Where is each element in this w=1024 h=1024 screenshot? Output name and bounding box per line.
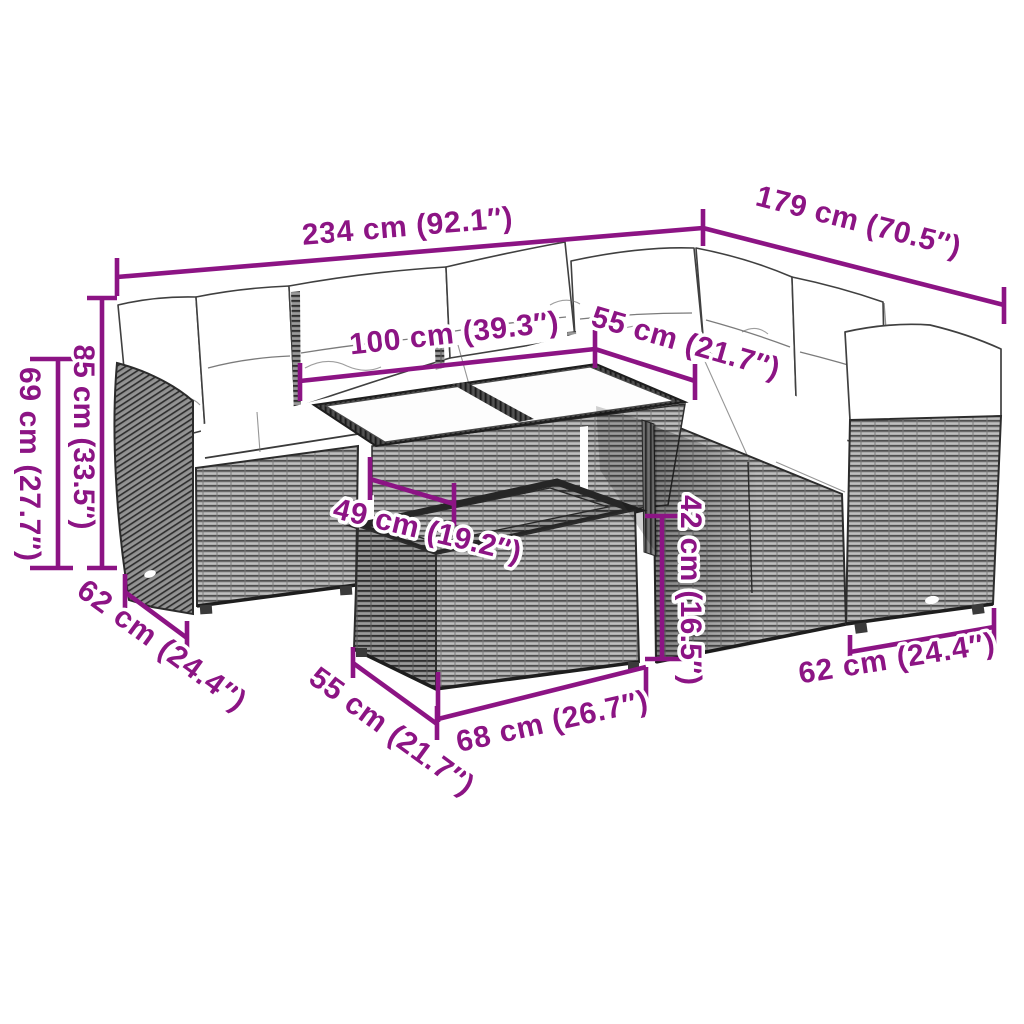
svg-text:179 cm (70.5″): 179 cm (70.5″) xyxy=(753,180,965,264)
svg-text:42 cm (16.5″): 42 cm (16.5″) xyxy=(674,495,707,685)
svg-text:85 cm (33.5″): 85 cm (33.5″) xyxy=(67,345,100,530)
svg-text:62 cm (24.4″): 62 cm (24.4″) xyxy=(796,627,997,691)
svg-text:69 cm (27.7″): 69 cm (27.7″) xyxy=(13,367,46,561)
svg-text:68 cm (26.7″): 68 cm (26.7″) xyxy=(453,685,651,759)
